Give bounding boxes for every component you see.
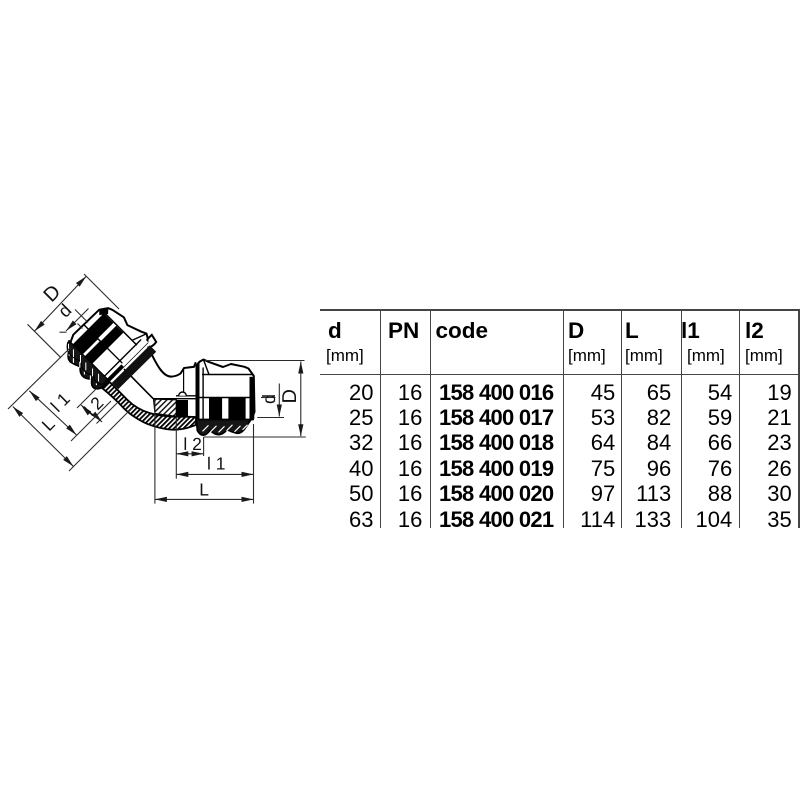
svg-text:L: L	[38, 414, 59, 435]
svg-text:l 2: l 2	[183, 434, 201, 454]
svg-text:l 1: l 1	[47, 389, 74, 416]
svg-text:l 2: l 2	[80, 393, 107, 420]
svg-text:L: L	[199, 480, 209, 500]
svg-text:l 1: l 1	[207, 454, 225, 474]
svg-text:d: d	[54, 300, 75, 321]
